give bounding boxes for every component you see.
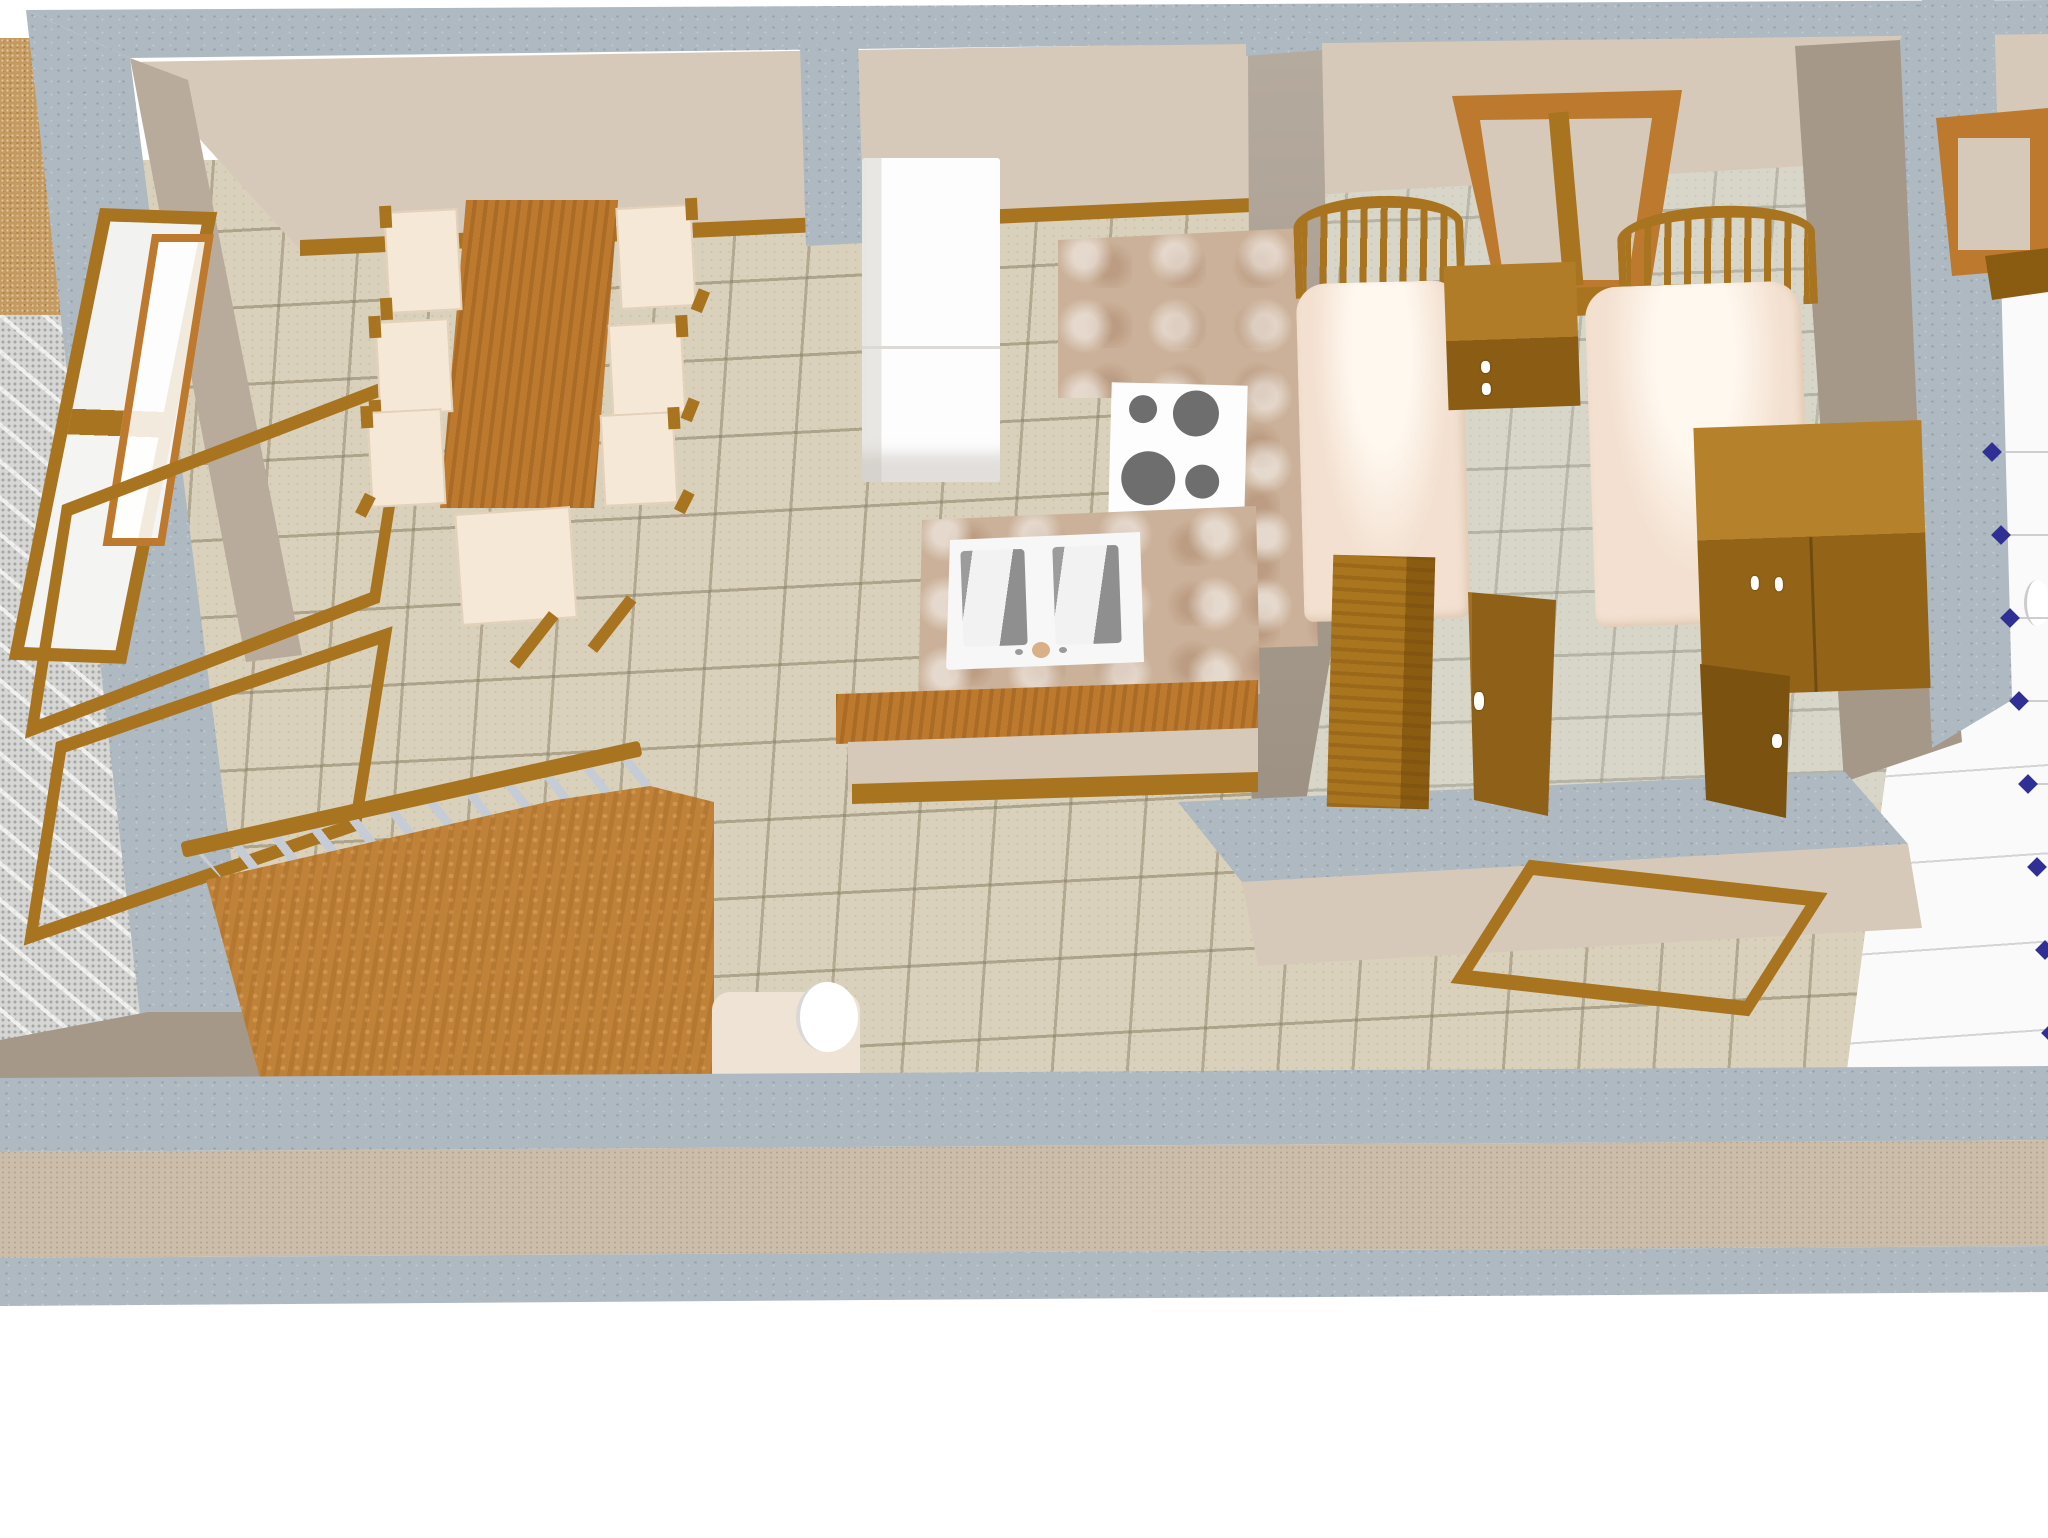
burner bbox=[1172, 390, 1219, 437]
armchair[interactable] bbox=[712, 992, 860, 1080]
burner bbox=[1121, 451, 1176, 506]
dining-chair[interactable] bbox=[375, 318, 454, 416]
bedroom-door-open[interactable] bbox=[1462, 588, 1562, 820]
dining-table[interactable] bbox=[440, 200, 618, 508]
armchair-cushion bbox=[796, 982, 858, 1052]
chair-post bbox=[667, 407, 680, 430]
window-sill bbox=[1985, 248, 2048, 300]
wardrobe[interactable] bbox=[1693, 420, 1930, 696]
burner bbox=[1129, 395, 1158, 424]
chair-post bbox=[685, 198, 698, 221]
drawer-handle bbox=[1481, 361, 1490, 373]
dining-chair[interactable] bbox=[600, 411, 679, 507]
sink-basin bbox=[960, 549, 1027, 647]
drawer-handle bbox=[1482, 383, 1491, 395]
refrigerator[interactable] bbox=[862, 158, 1000, 482]
closet-door[interactable] bbox=[1698, 660, 1792, 822]
chair-post bbox=[675, 315, 688, 338]
window-glass bbox=[1958, 138, 2030, 250]
chair-post bbox=[360, 406, 373, 429]
3d-view-canvas[interactable] bbox=[0, 0, 2048, 1538]
wardrobe-handle bbox=[1775, 577, 1783, 591]
sink-basin bbox=[1052, 545, 1121, 645]
kitchen-niche-pier bbox=[800, 44, 866, 246]
nightstand[interactable] bbox=[1444, 262, 1581, 411]
dining-chair[interactable] bbox=[367, 408, 447, 508]
cooktop[interactable] bbox=[1108, 382, 1247, 518]
chair-post bbox=[379, 206, 392, 229]
dining-chair[interactable] bbox=[454, 506, 578, 626]
door-handle bbox=[1772, 734, 1782, 748]
door-handle bbox=[1474, 692, 1484, 710]
wardrobe-handle bbox=[1751, 576, 1759, 590]
terrace-strip-bottom bbox=[0, 1140, 2048, 1260]
wardrobe-seam bbox=[1809, 537, 1817, 692]
chair-post bbox=[380, 298, 393, 321]
dining-chair[interactable] bbox=[615, 204, 696, 310]
bathroom-fixture[interactable] bbox=[2024, 580, 2048, 626]
dining-chair[interactable] bbox=[383, 208, 462, 314]
sink-faucet bbox=[1032, 642, 1050, 658]
chair-post bbox=[368, 316, 381, 339]
fridge-door-split bbox=[862, 346, 1000, 349]
burner bbox=[1185, 464, 1220, 499]
dining-chair[interactable] bbox=[608, 321, 687, 417]
chest-of-drawers[interactable] bbox=[1327, 555, 1436, 810]
